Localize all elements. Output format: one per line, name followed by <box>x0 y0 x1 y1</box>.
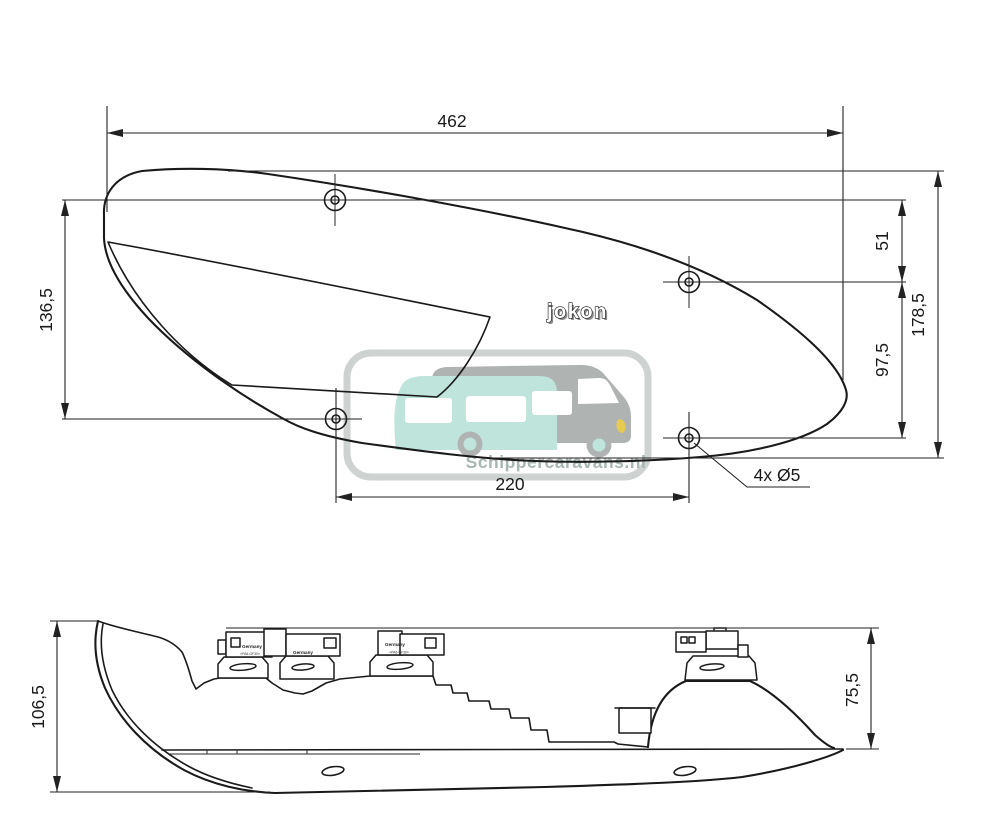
side-view: Germany «PA6-GF30» Germany Germany «PA6-… <box>95 621 843 793</box>
dimension-body-height: 75,5 <box>842 628 875 749</box>
base-oval-hole-left <box>321 765 344 777</box>
motorhome-front-hub <box>593 439 606 452</box>
side-view-dimensions: 106,5 75,5 <box>28 621 879 792</box>
connector2-origin-label: Germany <box>293 650 313 655</box>
brand-logo-text: jokon <box>546 301 608 323</box>
dome-side-block <box>619 708 651 733</box>
dimension-hole-offset-mid: 97,5 <box>872 282 906 438</box>
dim-offset-mid-label: 97,5 <box>872 343 892 377</box>
dimension-total-height: 178,5 <box>908 171 942 458</box>
dimension-left-height: 136,5 <box>36 200 69 419</box>
bulb-dome <box>648 681 834 748</box>
dim-offset-top-label: 51 <box>872 231 892 250</box>
dim-width-label: 462 <box>437 111 466 131</box>
connector1-material-label: «PA6-GF30» <box>240 652 260 656</box>
lens-seam-outline <box>108 242 490 397</box>
base-top-line <box>162 749 843 750</box>
dimension-width: 462 <box>107 111 843 137</box>
motorhome-window-2 <box>466 396 526 422</box>
bulb-socket-3: Germany «PA6-GF30» <box>370 631 444 676</box>
motorhome-window-1 <box>405 398 452 423</box>
bulb-socket-2: Germany <box>264 629 340 679</box>
hole-callout-label: 4x Ø5 <box>754 465 801 485</box>
motorhome-window-3 <box>532 391 572 415</box>
base-oval-hole-right <box>673 765 696 777</box>
motorhome-rear-hub <box>464 438 477 451</box>
dim-total-height-label: 178,5 <box>908 293 928 337</box>
profile-bottom-edge <box>275 750 843 793</box>
dimension-hole-offset-top: 51 <box>872 200 906 282</box>
motorhome-illustration <box>394 365 631 458</box>
technical-drawing: Schippercaravans.nl jokon jokon <box>0 0 1000 835</box>
brand-logo: jokon jokon <box>546 301 610 325</box>
dim-profile-height-label: 106,5 <box>28 685 48 729</box>
connector1-origin-label: Germany <box>242 644 262 649</box>
dim-hole-spacing-label: 220 <box>495 474 524 494</box>
drawing-canvas: Schippercaravans.nl jokon jokon <box>0 0 1000 835</box>
dim-body-height-label: 75,5 <box>842 673 862 707</box>
dimension-profile-height: 106,5 <box>28 621 61 792</box>
connector3-material-label: «PA6-GF30» <box>389 651 409 655</box>
dim-left-height-label: 136,5 <box>36 288 56 332</box>
connector3-origin-label: Germany <box>385 642 405 647</box>
reflector-jagged-profile <box>98 621 648 747</box>
motorhome-windshield <box>578 378 619 404</box>
bulb-socket-4 <box>676 628 757 680</box>
